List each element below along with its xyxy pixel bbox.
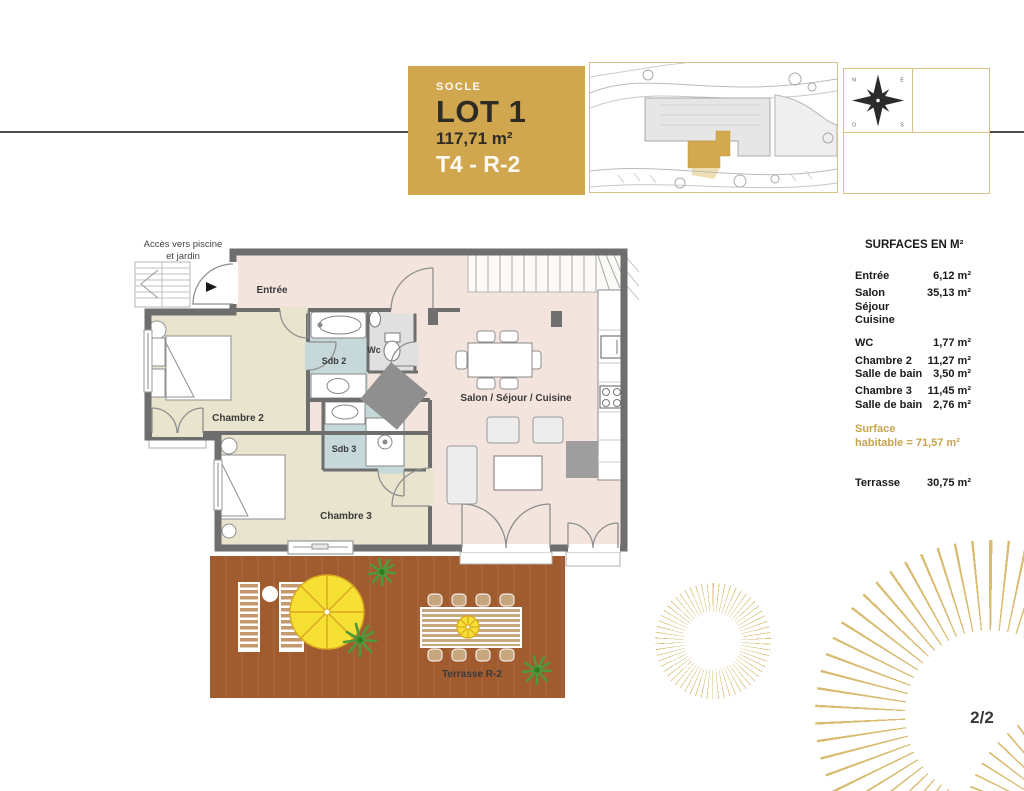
compass-e: E xyxy=(900,78,904,84)
dining-table xyxy=(468,343,532,377)
oven xyxy=(601,336,621,358)
sliding-door xyxy=(288,541,353,554)
surface-row: Salon35,13 m² xyxy=(855,287,971,301)
armchair xyxy=(533,417,563,443)
chair xyxy=(500,378,518,389)
surface-row: Salle de bain2,76 m² xyxy=(855,399,971,413)
door-sill xyxy=(566,552,620,566)
chair xyxy=(456,351,467,369)
door-sill xyxy=(460,552,552,564)
vanity xyxy=(311,374,366,398)
washbasin xyxy=(370,311,381,327)
coffee-table xyxy=(494,456,542,490)
surface-habitable-note: Surface habitable = 71,57 m² xyxy=(855,423,971,450)
sunburst-decoration-small xyxy=(655,583,771,699)
access-note-line2: et jardin xyxy=(166,251,200,262)
surface-row: WC1,77 m² xyxy=(855,337,971,351)
bed xyxy=(221,455,285,519)
legend-cell-bottom xyxy=(843,132,990,194)
room-label-entree: Entrée xyxy=(256,285,288,296)
armchair xyxy=(487,417,519,443)
surface-row: Cuisine xyxy=(855,314,971,328)
surfaces-title: SURFACES EN M² xyxy=(865,239,971,251)
room-label-terrasse: Terrasse R-2 xyxy=(442,669,502,680)
exterior-stairs xyxy=(135,262,190,307)
lot-type: T4 - R-2 xyxy=(436,151,585,178)
access-note-line1: Accès vers piscine xyxy=(144,239,223,250)
site-plan-drawing xyxy=(590,63,837,192)
surface-row: Entrée6,12 m² xyxy=(855,270,971,284)
stool xyxy=(222,524,236,538)
room-label-sdb2: Sdb 2 xyxy=(322,356,347,366)
compass-o: O xyxy=(852,123,856,129)
kitchen-counter xyxy=(598,290,624,480)
nightstand xyxy=(151,369,165,397)
compass-n: N xyxy=(852,78,856,84)
sofa xyxy=(447,446,477,504)
parasol-hub-icon xyxy=(457,616,479,638)
room-label-chambre3: Chambre 3 xyxy=(320,511,372,522)
surface-row: Chambre 211,27 m² xyxy=(855,355,971,369)
floor-plan-page: SOCLE LOT 1 117,71 m² T4 - R-2 xyxy=(0,0,1024,791)
page-number: 2/2 xyxy=(958,708,1006,728)
header-rule-left xyxy=(0,131,408,133)
compass-rose-icon: N E S O xyxy=(844,69,912,132)
surface-row: Séjour xyxy=(855,301,971,315)
room-label-chambre2: Chambre 2 xyxy=(212,413,264,424)
bed xyxy=(166,336,231,400)
chair xyxy=(477,331,495,342)
surface-row-terrace: Terrasse30,75 m² xyxy=(855,477,971,491)
surface-row: Salle de bain3,50 m² xyxy=(855,368,971,382)
room-label-wc: Wc xyxy=(367,345,381,355)
surface-row: Chambre 311,45 m² xyxy=(855,385,971,399)
entry-arrow-icon xyxy=(206,282,217,292)
legend-cell-empty xyxy=(912,68,990,133)
lot-number: LOT 1 xyxy=(436,95,585,129)
parasol-icon xyxy=(290,575,364,649)
stool xyxy=(221,438,237,454)
socle-label: SOCLE xyxy=(436,81,585,93)
terrace: Terrasse R-2 xyxy=(210,556,565,698)
room-label-salon: Salon / Séjour / Cuisine xyxy=(460,393,572,404)
surfaces-table: SURFACES EN M² Entrée6,12 m² Salon35,13 … xyxy=(855,239,971,491)
floor-plan-drawing: Terrasse R-2 xyxy=(75,225,640,710)
chair xyxy=(477,378,495,389)
nightstand xyxy=(151,338,165,366)
site-plan-thumbnail xyxy=(589,62,838,193)
lot-area: 117,71 m² xyxy=(436,129,585,148)
chair xyxy=(500,331,518,342)
lot-card: SOCLE LOT 1 117,71 m² T4 - R-2 xyxy=(408,66,585,195)
room-label-sdb3: Sdb 3 xyxy=(332,444,357,454)
side-table xyxy=(262,586,278,602)
compass-s: S xyxy=(900,123,904,129)
header-rule-right xyxy=(989,131,1024,133)
compass-cell: N E S O xyxy=(843,68,913,133)
